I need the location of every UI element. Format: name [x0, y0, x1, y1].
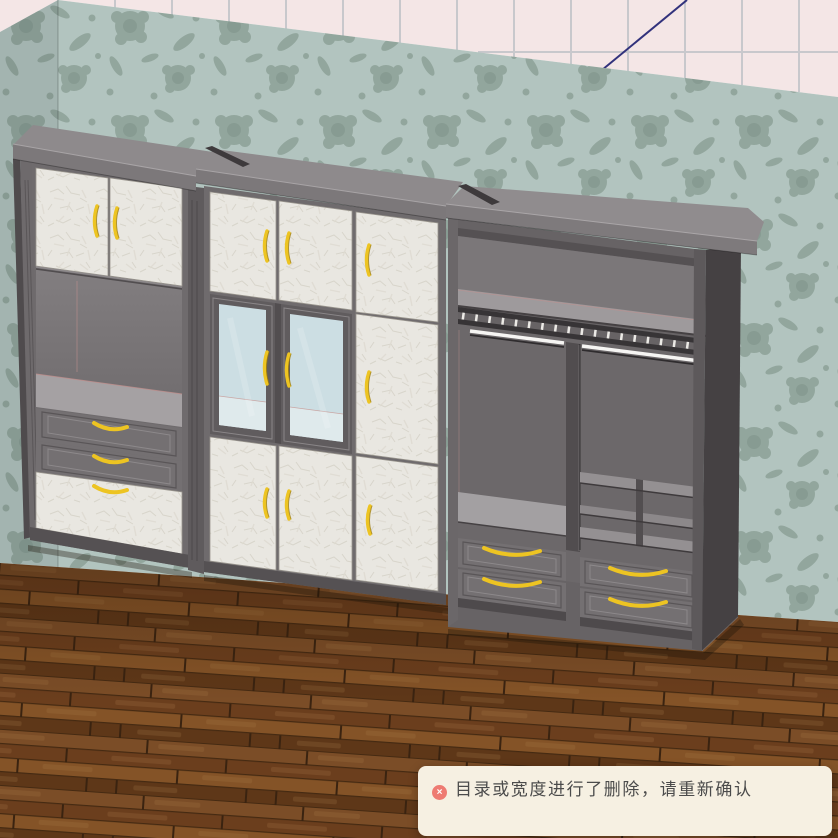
glass-center-post	[275, 303, 281, 444]
glass-door[interactable]	[281, 304, 352, 454]
divider-stile	[188, 186, 204, 574]
side-panel	[702, 245, 741, 651]
center-divider	[566, 342, 580, 552]
error-icon: ×	[432, 785, 447, 800]
door[interactable]	[279, 446, 352, 580]
room-3d-view[interactable]	[0, 0, 838, 838]
cabinet-right-wardrobe[interactable]	[448, 218, 744, 660]
door[interactable]	[36, 168, 108, 276]
door[interactable]	[279, 201, 352, 310]
cabinet-left-hutch[interactable]	[13, 157, 192, 578]
toast-message: 目录或宽度进行了删除，请重新确认	[455, 776, 763, 803]
toast-notification: × 目录或宽度进行了删除，请重新确认	[418, 766, 832, 836]
app-canvas[interactable]: × 目录或宽度进行了删除，请重新确认	[0, 0, 838, 838]
front-stile-left	[448, 218, 458, 627]
door[interactable]	[110, 178, 182, 286]
